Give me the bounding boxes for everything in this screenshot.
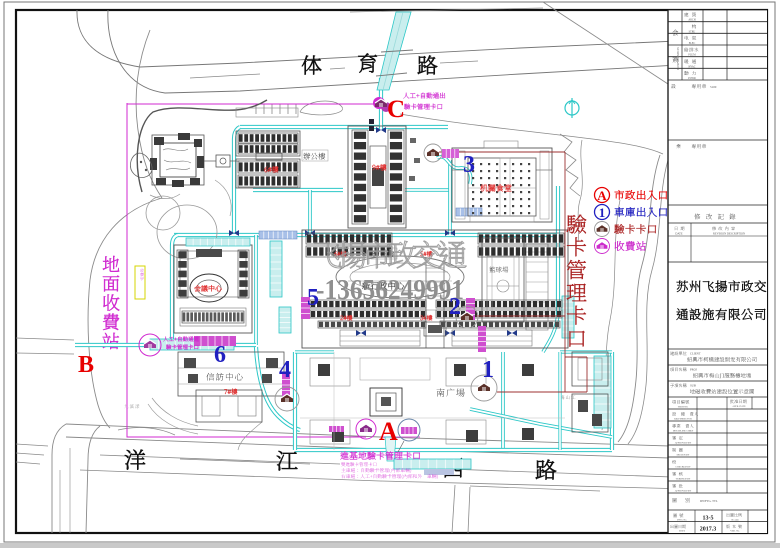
svg-text:-13656249991: -13656249991 [316,275,464,306]
svg-text:DWG No.: DWG No. [677,519,687,522]
svg-text:DATE: DATE [675,233,682,236]
svg-text:HVAC: HVAC [688,65,695,68]
svg-text:A: A [379,417,398,446]
svg-text:SCALE: SCALE [731,519,739,522]
svg-text:CHECKED BY: CHECKED BY [675,466,690,469]
svg-text:A: A [597,188,607,203]
svg-text:ARCH: ARCH [688,19,695,22]
svg-text:6: 6 [214,342,226,368]
svg-text:4: 4 [279,357,291,383]
svg-text:ELEC: ELEC [689,42,696,45]
svg-text:13-5: 13-5 [703,516,714,522]
svg-text:5100: 5100 [710,85,717,89]
svg-text:2017.3: 2017.3 [700,527,717,533]
svg-text:APPROVED BY: APPROVED BY [675,442,692,445]
svg-text:VER. No.: VER. No. [730,530,740,533]
svg-text:APPR. DATE: APPR. DATE [732,405,746,408]
svg-text:PROJ: PROJ [690,368,698,372]
svg-text:PLUM: PLUM [688,54,696,57]
svg-text:B: B [78,352,94,378]
svg-text:R&D DIRECTOR: R&D DIRECTOR [674,418,692,421]
svg-text:REVISION DESCRIPTION: REVISION DESCRIPTION [713,233,745,236]
svg-text:DISCIPLINE CHIEF: DISCIPLINE CHIEF [673,430,694,433]
svg-text:DWFTG. TTL: DWFTG. TTL [700,499,718,503]
svg-text:1: 1 [599,205,606,220]
svg-text:CONFIRMATION: CONFIRMATION [676,46,680,70]
svg-text:3: 3 [463,152,475,178]
svg-text:1: 1 [482,357,494,383]
svg-text:STRU: STRU [689,30,696,33]
svg-text:VERIFIED BY: VERIFIED BY [676,478,691,481]
svg-text:CLIENT: CLIENT [690,352,701,356]
svg-text:APPROVED BY: APPROVED BY [675,490,692,493]
svg-text:ITEM NO.: ITEM NO. [678,406,689,409]
svg-text:POWR: POWR [688,77,696,80]
svg-text:2: 2 [449,294,461,320]
svg-text:DRAWN BY: DRAWN BY [677,454,690,457]
svg-text:C: C [387,96,405,123]
svg-text:SUB: SUB [690,384,696,388]
svg-text:5: 5 [307,285,319,311]
svg-text:DATE: DATE [679,530,686,533]
